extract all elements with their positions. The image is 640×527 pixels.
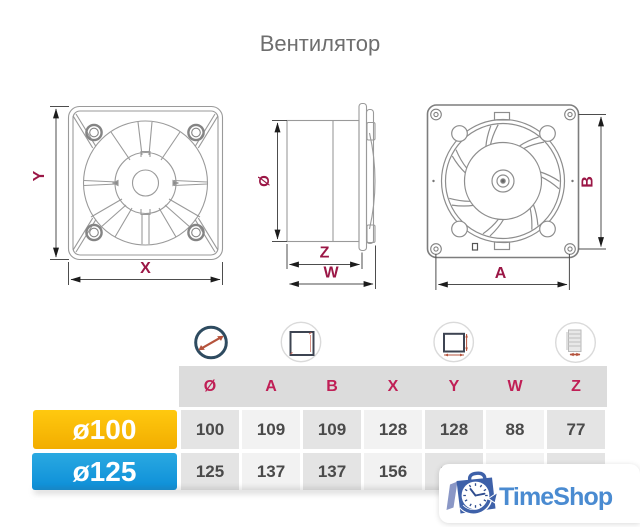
svg-text:Y: Y — [31, 170, 48, 181]
svg-text:Ø: Ø — [256, 175, 273, 187]
svg-text:X: X — [140, 260, 151, 277]
svg-text:A: A — [495, 265, 507, 282]
svg-text:Z: Z — [320, 245, 330, 262]
svg-text:B: B — [580, 176, 597, 188]
svg-text:W: W — [323, 265, 339, 282]
